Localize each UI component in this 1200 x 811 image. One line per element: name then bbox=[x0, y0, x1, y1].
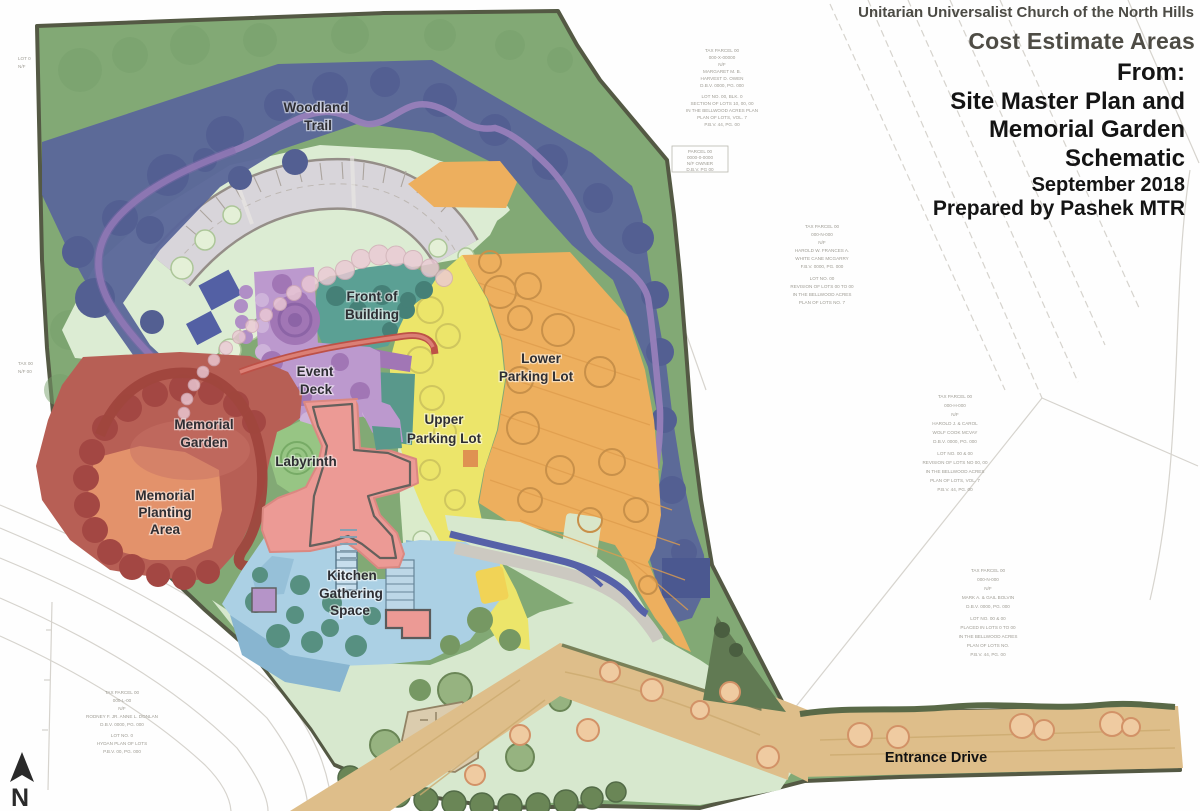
svg-text:Memorial: Memorial bbox=[135, 488, 194, 503]
svg-text:Lower: Lower bbox=[521, 351, 562, 366]
svg-text:Parking Lot: Parking Lot bbox=[407, 431, 482, 446]
svg-text:Woodland: Woodland bbox=[284, 100, 349, 115]
svg-text:Labyrinth: Labyrinth bbox=[275, 454, 337, 469]
svg-text:Space: Space bbox=[330, 603, 370, 618]
svg-text:Building: Building bbox=[345, 307, 399, 322]
svg-text:Front of: Front of bbox=[347, 289, 398, 304]
svg-text:Parking Lot: Parking Lot bbox=[499, 369, 574, 384]
svg-text:Memorial: Memorial bbox=[174, 417, 233, 432]
svg-text:Upper: Upper bbox=[424, 412, 464, 427]
svg-text:Planting: Planting bbox=[138, 505, 191, 520]
svg-text:Entrance Drive: Entrance Drive bbox=[885, 750, 987, 766]
svg-text:Event: Event bbox=[297, 364, 334, 379]
svg-text:Gathering: Gathering bbox=[319, 586, 383, 601]
svg-text:Garden: Garden bbox=[180, 435, 227, 450]
svg-text:Trail: Trail bbox=[304, 118, 332, 133]
svg-text:Deck: Deck bbox=[300, 382, 333, 397]
svg-text:Kitchen: Kitchen bbox=[327, 568, 377, 583]
svg-text:Area: Area bbox=[150, 522, 181, 537]
